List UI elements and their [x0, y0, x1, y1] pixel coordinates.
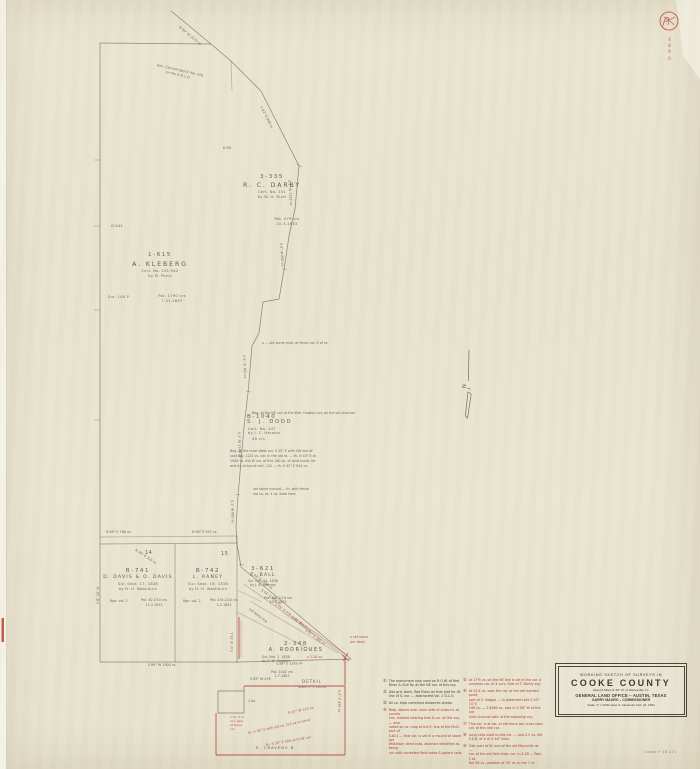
title-block-inner: WORKING SKETCH OF SURVEYS IN COOKE COUNT…	[558, 666, 685, 715]
survey-linework	[0, 0, 700, 769]
patent-note: 11-2-1853	[145, 604, 162, 608]
detail-title: DETAIL	[302, 680, 322, 685]
county-title: COOKE COUNTY	[571, 678, 671, 688]
field-note: x — old stone mnd. at fence cor. E of rd…	[262, 342, 328, 346]
survey-detail: Cert. No. 241/342	[141, 269, 178, 273]
bearing-label-red: S 0° E 476 vs	[336, 690, 340, 712]
red-annotation: x 2.20 vs	[307, 656, 322, 660]
survey-name: L. RANEY	[193, 575, 223, 580]
detail-notch-rect	[218, 691, 244, 713]
bearing-label: S 5° W 1122 vs	[286, 180, 292, 206]
note-item: ⑧ Long calls used to site cor. — and 2.5…	[463, 733, 543, 742]
bearing-label: S 4° W 760 vs	[241, 355, 246, 378]
file-reference: Cooke P 48 271	[644, 750, 677, 754]
north-label: N	[463, 384, 469, 388]
survey-id: 1-615	[148, 252, 172, 258]
survey-detail: Sur. Sept. 16, 1838	[188, 582, 228, 586]
north-arrow-tick	[468, 388, 471, 389]
patent-note: Pat. 479 vrs	[275, 217, 300, 221]
stamp-monogram	[663, 17, 675, 26]
survey-name: S. J. DODD	[247, 420, 293, 426]
title-line: WORKING SKETCH OF SURVEYS IN	[580, 673, 662, 677]
note-number: ⑥	[463, 689, 467, 719]
field-note: old co. rd. 4 vs. wide here	[253, 493, 296, 497]
note-item: ④ Bldg. stones mon. each side of cross r…	[383, 708, 463, 755]
location-subtitle: About 8 Miles N. 60° W. of Gainesville, …	[593, 688, 649, 692]
spur-line	[231, 61, 232, 90]
patent-note: Pat. 1790 vrs	[158, 294, 186, 298]
note-number: ②	[383, 690, 387, 699]
record-note: Rge. vol. 2	[183, 600, 201, 604]
survey-detail: by H. H. Washburn	[189, 587, 227, 591]
note-item: ⑦ This cor. is at cor. of old fence per …	[463, 722, 543, 731]
notes-column-left: ① The monument now used on R.O.W. of Red…	[383, 679, 463, 758]
survey-name: D. DAVIS & O. DAVIS	[103, 575, 173, 580]
bearing-label: N 89° E 952 vs	[192, 531, 217, 535]
survey-name: A. KLEBERG	[132, 261, 188, 268]
survey-id: 3-621	[251, 566, 275, 572]
note-number: ③	[383, 701, 387, 705]
note-number: ④	[383, 708, 387, 755]
block-number-15: 15	[221, 552, 228, 558]
survey-ref-k95: K-95	[223, 146, 231, 150]
patent-note: 1-7-1853	[275, 675, 290, 679]
scanned-survey-sheet: 3-335 R. C. DARBY Cert. No. 141 by W. H.…	[0, 0, 700, 769]
patent-note: 7-31-1857	[161, 299, 182, 303]
patent-note: 10-3-1853	[276, 222, 297, 226]
survey-name: A. RODRIGUES	[269, 648, 324, 654]
survey-detail: by H. H. Washburn	[119, 587, 157, 591]
scale-line: Scale: 1" = 2000 varas S. Alexander Feb.…	[587, 703, 654, 707]
detail-bearing: S 89° W 476	[250, 678, 271, 682]
acreage-label: 1 Ac.	[248, 700, 256, 704]
survey-id: B-741	[126, 568, 150, 574]
note-item: ① The monument now used on R.O.W. of Red…	[383, 679, 463, 688]
note-number: ⑨	[463, 744, 467, 765]
survey-detail: by M. Perry	[148, 274, 172, 278]
note-item: ③ All co. map corrected distances shown.	[383, 701, 463, 705]
adjoiner-name: E. CRAVENS B	[256, 746, 294, 750]
note-number: ①	[383, 679, 387, 688]
detail-scale: Scale: 1" = 200 vs	[298, 686, 326, 689]
note-item: ② Alta grd. bank, Red River on that plat…	[383, 690, 463, 699]
red-corner-note: per deed	[350, 641, 365, 645]
north-arrow-shaft	[468, 350, 469, 381]
red-linework	[216, 617, 349, 755]
title-block: WORKING SKETCH OF SURVEYS IN COOKE COUNT…	[555, 663, 687, 717]
stamp-number-vertical: 48 90	[668, 38, 671, 63]
red-margin-mark	[2, 618, 5, 642]
parcel-top-line	[100, 543, 237, 544]
note-number: ⑦	[463, 722, 467, 731]
note-item: ⑨ Site: part of W. end of the old Maysvi…	[463, 744, 543, 765]
glo-stamp-icon	[660, 12, 678, 30]
survey-name: R. C. DARBY	[243, 182, 301, 189]
bearing-label: S 89° W 1900 vs	[148, 664, 175, 668]
survey-detail: Cert. No. 141	[258, 190, 286, 194]
bearing-label: S 0° 20' W	[97, 587, 101, 604]
bearing-label: S 6° W 890 vs	[278, 243, 283, 266]
red-parcel-note: cor.	[230, 728, 235, 731]
bearing-label: S 1° W 985 vs	[229, 500, 234, 523]
commissioner-line: GARRY MAURO – COMMISSIONER	[592, 698, 650, 702]
survey-id: B-742	[196, 568, 220, 574]
note-number: ⑤	[463, 678, 467, 687]
survey-detail: Sur. Sept. 17, 1838	[118, 582, 158, 586]
survey-detail: 48 vrs	[252, 437, 265, 441]
note-number: ⑧	[463, 733, 467, 742]
field-note: Beg. at the NE cor. of the Wm. Hudson sv…	[252, 412, 355, 416]
tract-outline	[100, 11, 351, 662]
north-arrow-feather	[465, 392, 471, 418]
note-item: ⑤ At 17½ vs. on the NE line is set in th…	[463, 678, 543, 687]
survey-extra: Sur. 146 P	[108, 295, 129, 299]
survey-detail: by W. H. Hunt	[258, 195, 286, 199]
bearing-label-red: S 0° W 29.1	[231, 632, 235, 652]
survey-detail: by J. C. Harmon	[248, 431, 281, 435]
record-note: Rge. vol. 2	[110, 600, 128, 604]
survey-ref-g441: G-441	[111, 224, 123, 228]
field-note: and by virtue of cert. 142 — th. S 45° E…	[230, 465, 308, 469]
patent-note: 2-2-1853	[217, 604, 232, 608]
notes-column-right: ⑤ At 17½ vs. on the NE line is set in th…	[463, 678, 543, 768]
bearing-label: N 89° E 766 vs	[106, 531, 131, 535]
note-item: ⑥ At 23.4 vs. over the cor. of the old m…	[463, 689, 543, 719]
parcel-top-double-line	[100, 536, 237, 537]
survey-id: 3-335	[260, 174, 284, 180]
fan-line-5	[237, 590, 262, 602]
